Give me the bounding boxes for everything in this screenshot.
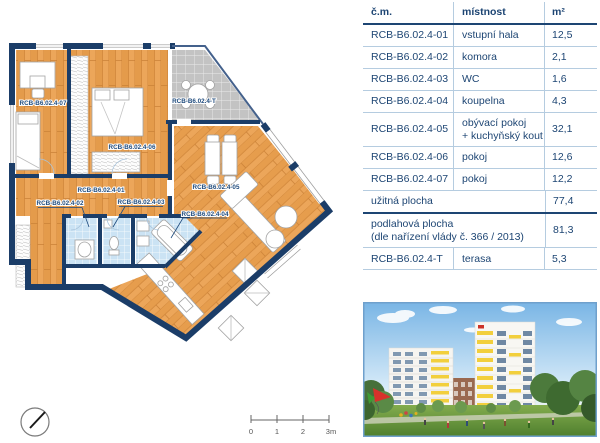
right-tower <box>475 322 535 414</box>
desk-chair <box>32 89 44 98</box>
compass-icon <box>18 404 54 440</box>
room-label: RCB-B6.02.4-03 <box>118 199 165 206</box>
table-row: RCB-B6.02.4-04 koupelna 4,3 <box>363 91 597 113</box>
table-row: RCB-B6.02.4-03 WC 1,6 <box>363 69 597 91</box>
pillow <box>18 114 38 124</box>
terrace-chair <box>182 81 191 90</box>
room-label: RCB-B6.02.4-07 <box>20 100 67 107</box>
room-label: RCB-B6.02.4-T <box>172 98 216 105</box>
header-area: m² <box>545 2 597 23</box>
hall-floor <box>16 176 168 216</box>
logo-sign <box>478 325 484 329</box>
table-row: RCB-B6.02.4-06 pokoj 12,6 <box>363 147 597 169</box>
summary-row-floor-area: podlahová plocha (dle nařízení vlády č. … <box>363 214 597 248</box>
bath-sink <box>137 236 149 246</box>
door-gap <box>39 173 54 179</box>
dining-table <box>205 142 220 175</box>
header-code: č.m. <box>363 2 453 23</box>
room-label: RCB-B6.02.4-06 <box>109 144 156 151</box>
bath-sink <box>137 221 149 231</box>
pouf <box>266 230 284 248</box>
dining-chair <box>207 176 219 184</box>
scale-tick-label: 0 <box>249 427 253 436</box>
pillow <box>95 90 110 100</box>
door-gap <box>167 180 173 196</box>
left-tower <box>389 348 453 410</box>
table-row: RCB-B6.02.4-05 obývací pokoj + kuchyňský… <box>363 113 597 147</box>
room-label: RCB-B6.02.4-05 <box>193 184 240 191</box>
scale-tick-label: 1 <box>275 427 279 436</box>
summary-row-usable-area: užitná plocha 77,4 <box>363 191 597 214</box>
toilet-tank <box>109 250 119 255</box>
scale-bar: 0 1 2 3m <box>243 406 339 438</box>
terrace-row: RCB-B6.02.4-T terasa 5,3 <box>363 248 597 270</box>
floor-plan: RCB-B6.02.4-07 RCB-B6.02.4-06 RCB-B6.02.… <box>5 28 350 344</box>
table-header-row: č.m. místnost m² <box>363 2 597 25</box>
appliance <box>218 315 243 340</box>
door-gap <box>112 173 127 179</box>
scale-tick-label: 2 <box>301 427 305 436</box>
apartment-fact-sheet: RCB-B6.02.4-07 RCB-B6.02.4-06 RCB-B6.02.… <box>0 0 600 443</box>
scale-tick-label: 3m <box>326 427 336 436</box>
table-row: RCB-B6.02.4-02 komora 2,1 <box>363 47 597 69</box>
dining-table <box>222 142 237 175</box>
pillow <box>114 90 129 100</box>
building-render <box>363 302 597 437</box>
terrace-door <box>177 119 191 125</box>
wardrobe-strip <box>70 56 88 174</box>
hall-column-floor <box>30 216 62 287</box>
header-room: místnost <box>453 2 545 23</box>
table-row: RCB-B6.02.4-01 vstupní hala 12,5 <box>363 25 597 47</box>
terrace-chair <box>206 81 215 90</box>
room-label: RCB-B6.02.4-04 <box>182 211 229 218</box>
area-table: č.m. místnost m² RCB-B6.02.4-01 vstupní … <box>363 2 597 270</box>
monitor <box>30 76 45 88</box>
table-row: RCB-B6.02.4-07 pokoj 12,2 <box>363 169 597 191</box>
wardrobe-06 <box>92 152 140 172</box>
pouf <box>275 206 297 228</box>
room-label: RCB-B6.02.4-01 <box>78 187 125 194</box>
toilet <box>110 237 119 250</box>
room-label: RCB-B6.02.4-02 <box>37 200 84 207</box>
